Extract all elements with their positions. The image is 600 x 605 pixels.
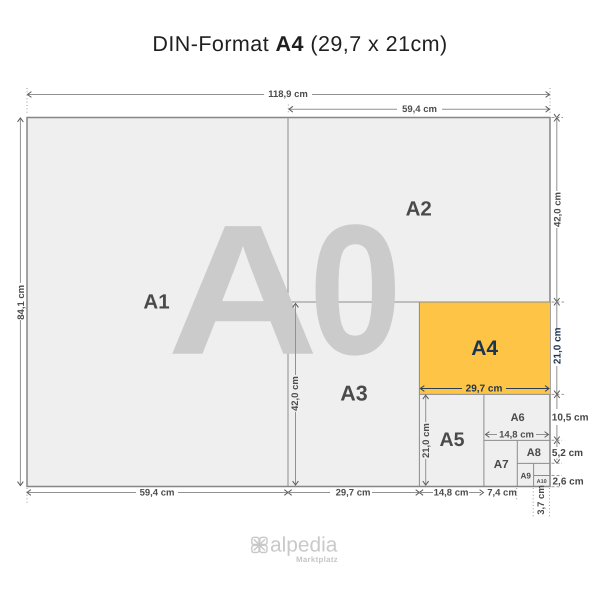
svg-text:10,5 cm: 10,5 cm: [552, 412, 589, 423]
svg-text:A8: A8: [527, 447, 541, 459]
svg-text:5,2 cm: 5,2 cm: [552, 448, 583, 459]
svg-text:2,6 cm: 2,6 cm: [553, 477, 584, 488]
svg-text:29,7 cm: 29,7 cm: [336, 488, 371, 499]
svg-text:84,1 cm: 84,1 cm: [16, 285, 27, 320]
svg-text:A2: A2: [406, 198, 432, 221]
svg-text:A4: A4: [471, 337, 498, 360]
svg-text:A7: A7: [494, 458, 509, 471]
svg-text:Marktplatz: Marktplatz: [296, 555, 338, 564]
svg-text:A5: A5: [439, 429, 464, 451]
svg-text:21,0 cm: 21,0 cm: [421, 423, 432, 458]
svg-text:42,0 cm: 42,0 cm: [290, 376, 301, 411]
svg-text:A: A: [167, 187, 319, 394]
svg-text:59,4 cm: 59,4 cm: [402, 104, 437, 115]
svg-text:3,7 cm: 3,7 cm: [536, 485, 547, 515]
svg-text:7,4 cm: 7,4 cm: [487, 488, 517, 499]
svg-text:A9: A9: [520, 472, 531, 481]
svg-text:118,9 cm: 118,9 cm: [268, 89, 308, 100]
svg-text:A10: A10: [537, 479, 547, 485]
svg-text:A3: A3: [340, 382, 368, 406]
svg-text:42,0 cm: 42,0 cm: [552, 192, 563, 227]
svg-text:14,8 cm: 14,8 cm: [434, 488, 469, 499]
svg-text:DIN-Format A4 (29,7 x 21cm): DIN-Format A4 (29,7 x 21cm): [152, 32, 447, 56]
svg-text:A1: A1: [143, 290, 169, 313]
svg-text:A6: A6: [511, 412, 525, 424]
svg-text:21,0 cm: 21,0 cm: [552, 327, 563, 364]
svg-text:alpedia: alpedia: [270, 534, 338, 557]
svg-text:0: 0: [309, 187, 402, 394]
svg-text:14,8 cm: 14,8 cm: [499, 430, 534, 441]
svg-text:29,7 cm: 29,7 cm: [466, 384, 503, 395]
svg-text:59,4 cm: 59,4 cm: [140, 488, 175, 499]
